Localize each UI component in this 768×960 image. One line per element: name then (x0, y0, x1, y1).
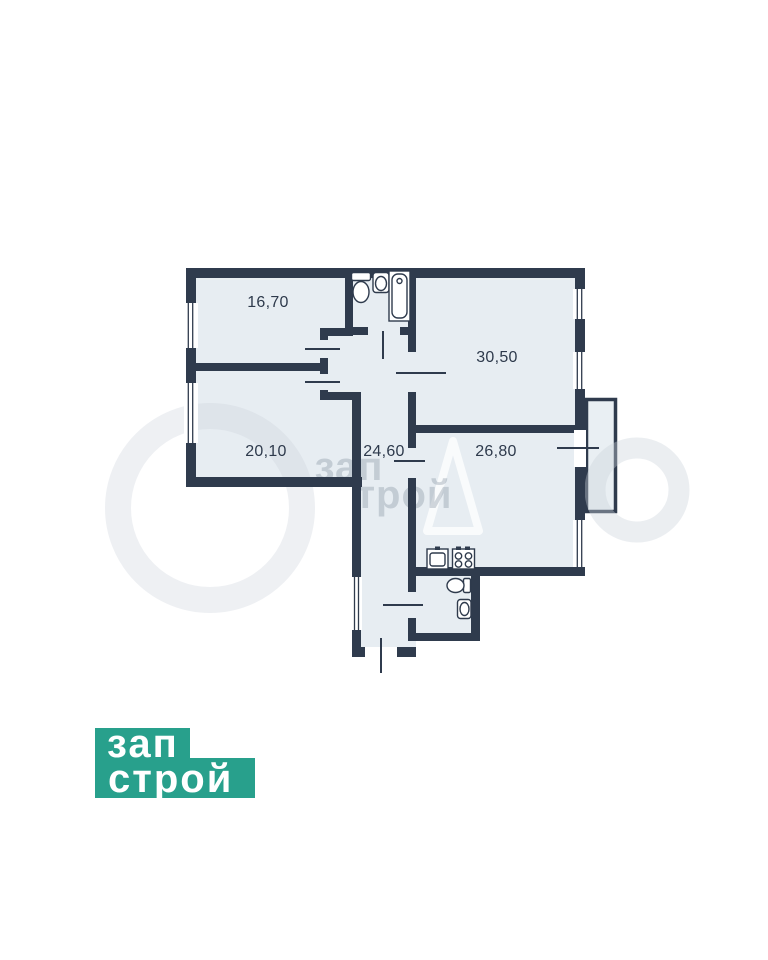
wall-corridor-right-a (408, 392, 416, 448)
wall-between-right-rooms (416, 425, 575, 433)
window-right-top-icon (573, 289, 587, 319)
window-left-bottom-icon (184, 383, 198, 443)
wall-corridor-left-b (352, 630, 361, 657)
window-right-bottom-icon (573, 520, 587, 567)
toilet-icon (352, 273, 371, 303)
watermark-text-line2: трой (355, 473, 452, 517)
wall-bottom-left-room (186, 477, 362, 487)
window-left-top-icon (184, 303, 198, 348)
window-corridor-icon (351, 577, 362, 630)
wall-bathroom-bottom-a (345, 327, 368, 335)
wall-corridor-right-c (408, 618, 416, 633)
stove-icon (453, 547, 475, 570)
wall-corridor-right-b (408, 478, 416, 592)
floorplan-page: зап трой (0, 0, 768, 960)
room-label-top-left: 16,70 (247, 294, 289, 311)
wall-nook-left-mid (320, 358, 328, 374)
room-label-bottom-left: 20,10 (245, 443, 287, 460)
wall-between-left-rooms (186, 363, 328, 371)
wc-washbasin-icon (458, 600, 472, 619)
wall-bathroom-bottom-b (400, 327, 416, 335)
room-label-hallway: 24,60 (363, 443, 405, 460)
developer-logo: зап строй (95, 722, 255, 801)
washbasin-icon (373, 273, 389, 293)
wall-nook-left-top (320, 336, 328, 340)
room-label-top-right: 30,50 (476, 349, 518, 366)
logo-line2: строй (108, 757, 233, 801)
wall-nook-bottom (320, 392, 361, 400)
wall-corridor-left-a (352, 400, 361, 577)
wall-corridor-bottom-b (397, 647, 416, 657)
wall-wc-right (471, 576, 480, 641)
kitchen-sink-icon (427, 547, 448, 570)
floorplan-drawing: зап трой (0, 0, 768, 960)
wc-toilet-icon (447, 579, 471, 593)
bathtub-icon (389, 271, 410, 321)
room-label-bottom-right: 26,80 (475, 443, 517, 460)
wall-wc-bottom (408, 633, 480, 641)
window-right-mid-icon (573, 352, 587, 389)
